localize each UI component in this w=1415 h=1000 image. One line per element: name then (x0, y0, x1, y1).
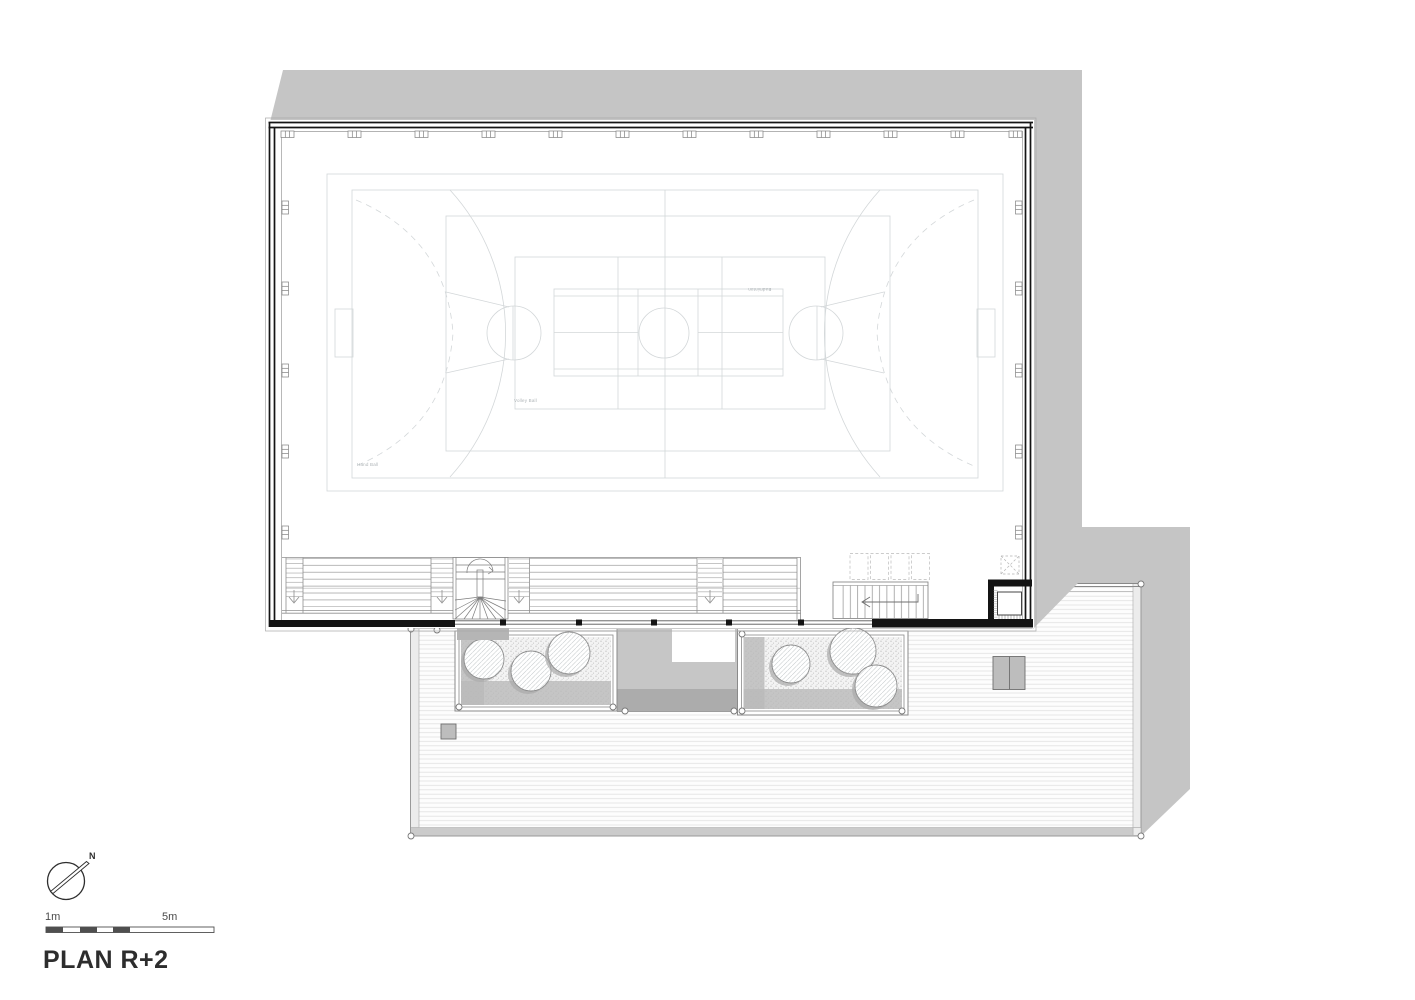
terrace-fixture-small (441, 724, 456, 739)
scale-label-1m: 1m (45, 911, 60, 923)
plan-title: PLAN R+2 (43, 946, 169, 975)
planter-right (738, 628, 909, 715)
badminton-court-label: Badminton (748, 287, 771, 292)
bleachers (282, 558, 801, 621)
floor-plan-drawing (0, 0, 1415, 1000)
north-arrow (48, 862, 90, 900)
scale-label-5m: 5m (162, 911, 177, 923)
handball-court-label: Hand Ball (357, 462, 378, 467)
sports-hall (266, 118, 1037, 631)
spiral-stair (453, 558, 508, 620)
scale-bar (46, 927, 214, 933)
architectural-plan-page: Volley Ball Hand Ball Badminton N 1m 5m … (0, 0, 1415, 1000)
planter-left (455, 631, 617, 711)
stair-landing-shadow (457, 627, 509, 640)
terrace-equipment-unit (993, 657, 1025, 690)
volleyball-court-label: Volley Ball (514, 398, 537, 403)
north-label: N (89, 851, 96, 861)
terrace-void (617, 629, 738, 712)
